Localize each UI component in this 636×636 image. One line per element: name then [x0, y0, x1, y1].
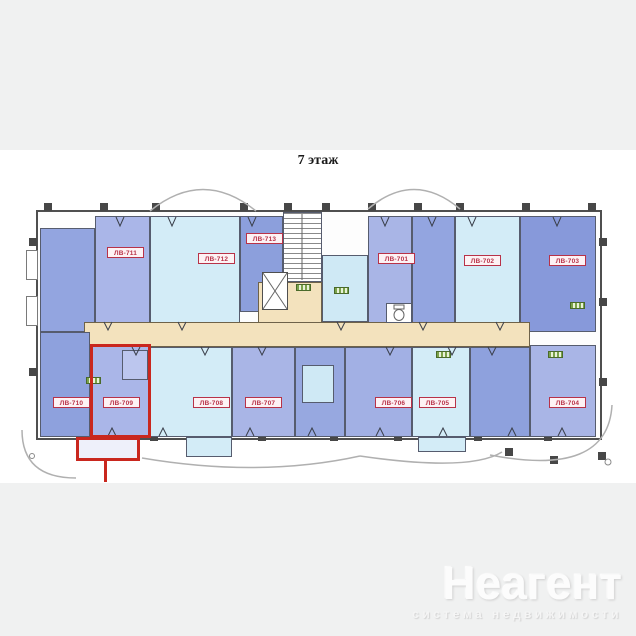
stairwell — [283, 212, 322, 282]
room-710 — [40, 332, 90, 437]
unit-label-704: ЛВ-704 — [549, 397, 586, 408]
window-mark — [334, 287, 349, 294]
room-703 — [520, 216, 596, 332]
unit-label-712: ЛВ-712 — [198, 253, 235, 264]
pilaster — [152, 203, 160, 211]
pilaster — [599, 378, 607, 386]
facade-niche — [26, 296, 38, 326]
unit-label-707: ЛВ-707 — [245, 397, 282, 408]
watermark-tagline: система недвижимости — [412, 607, 622, 621]
room-708-balcony — [186, 437, 232, 457]
facade-niche — [26, 250, 38, 280]
window-mark — [570, 302, 585, 309]
unit-label-711: ЛВ-711 — [107, 247, 144, 258]
pilaster — [44, 203, 52, 211]
pilaster — [598, 452, 606, 460]
pilaster — [522, 203, 530, 211]
pilaster — [599, 238, 607, 246]
unit-label-713: ЛВ-713 — [246, 233, 283, 244]
pilaster — [505, 448, 513, 456]
pilaster — [29, 238, 37, 246]
highlighted-unit-outline — [90, 344, 151, 438]
room-712 — [150, 216, 240, 332]
room-705 — [412, 347, 470, 437]
pilaster — [599, 298, 607, 306]
room-705-balcony — [418, 437, 466, 452]
watermark: Неагент система недвижимости — [412, 560, 622, 621]
window-mark — [296, 284, 311, 291]
terrace-dot — [30, 454, 35, 459]
elevator-shaft — [262, 272, 288, 310]
room-701b — [412, 216, 455, 328]
pilaster — [414, 203, 422, 211]
unit-label-703: ЛВ-703 — [549, 255, 586, 266]
pilaster — [322, 203, 330, 211]
window-mark — [548, 351, 563, 358]
pilaster — [588, 203, 596, 211]
pilaster — [100, 203, 108, 211]
floor-plan: ЛВ-711 ЛВ-712 ЛВ-713 ЛВ-701 ЛВ-702 ЛВ-70… — [0, 0, 636, 636]
pilaster — [284, 203, 292, 211]
watermark-brand: Неагент — [412, 560, 622, 606]
pilaster — [368, 203, 376, 211]
unit-label-709: ЛВ-709 — [103, 397, 140, 408]
room-711 — [95, 216, 150, 332]
unit-label-710: ЛВ-710 — [53, 397, 90, 408]
room-704b — [470, 347, 530, 437]
unit-label-706: ЛВ-706 — [375, 397, 412, 408]
room-704 — [530, 345, 596, 437]
room-top-left — [40, 228, 95, 332]
unit-label-702: ЛВ-702 — [464, 255, 501, 266]
pilaster — [550, 456, 558, 464]
room-mid-bath — [302, 365, 334, 403]
room-702 — [455, 216, 520, 328]
bathroom — [386, 303, 412, 323]
screenshot-root: { "title": "7 этаж", "plan": { "highligh… — [0, 0, 636, 636]
unit-label-708: ЛВ-708 — [193, 397, 230, 408]
highlight-pointer-line — [104, 460, 107, 482]
unit-label-701: ЛВ-701 — [378, 253, 415, 264]
room-708 — [150, 347, 232, 437]
unit-label-705: ЛВ-705 — [419, 397, 456, 408]
pilaster — [240, 203, 248, 211]
room-707 — [232, 347, 295, 437]
room-706 — [345, 347, 412, 437]
highlighted-unit-balcony — [76, 437, 140, 461]
pilaster — [456, 203, 464, 211]
pilaster — [29, 368, 37, 376]
window-mark — [436, 351, 451, 358]
